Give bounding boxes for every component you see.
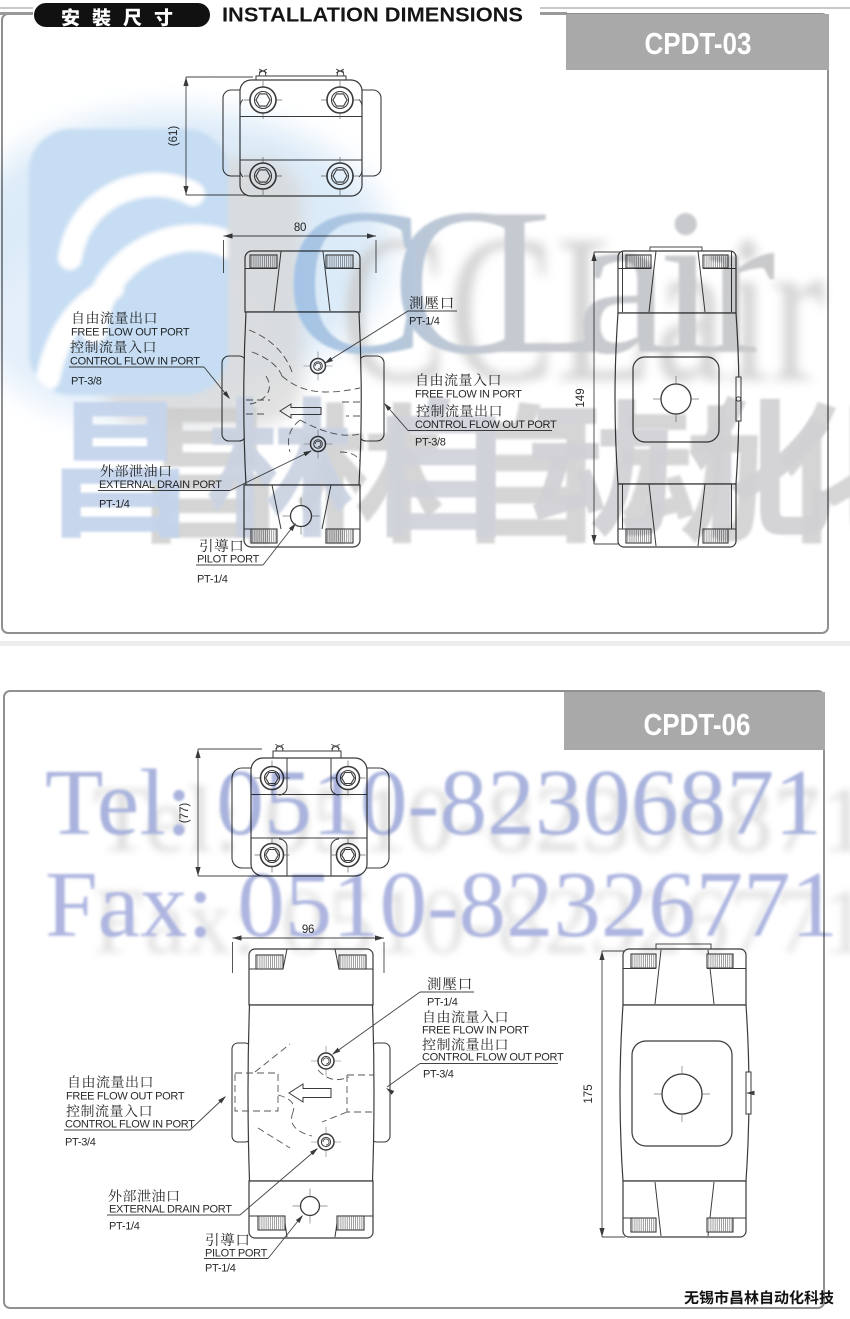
svg-text:CCLair: CCLair	[285, 166, 776, 398]
svg-text:Fax: 0510-82326771: Fax: 0510-82326771	[45, 853, 838, 957]
svg-text:Tel: 0510-82306871: Tel: 0510-82306871	[45, 751, 822, 855]
